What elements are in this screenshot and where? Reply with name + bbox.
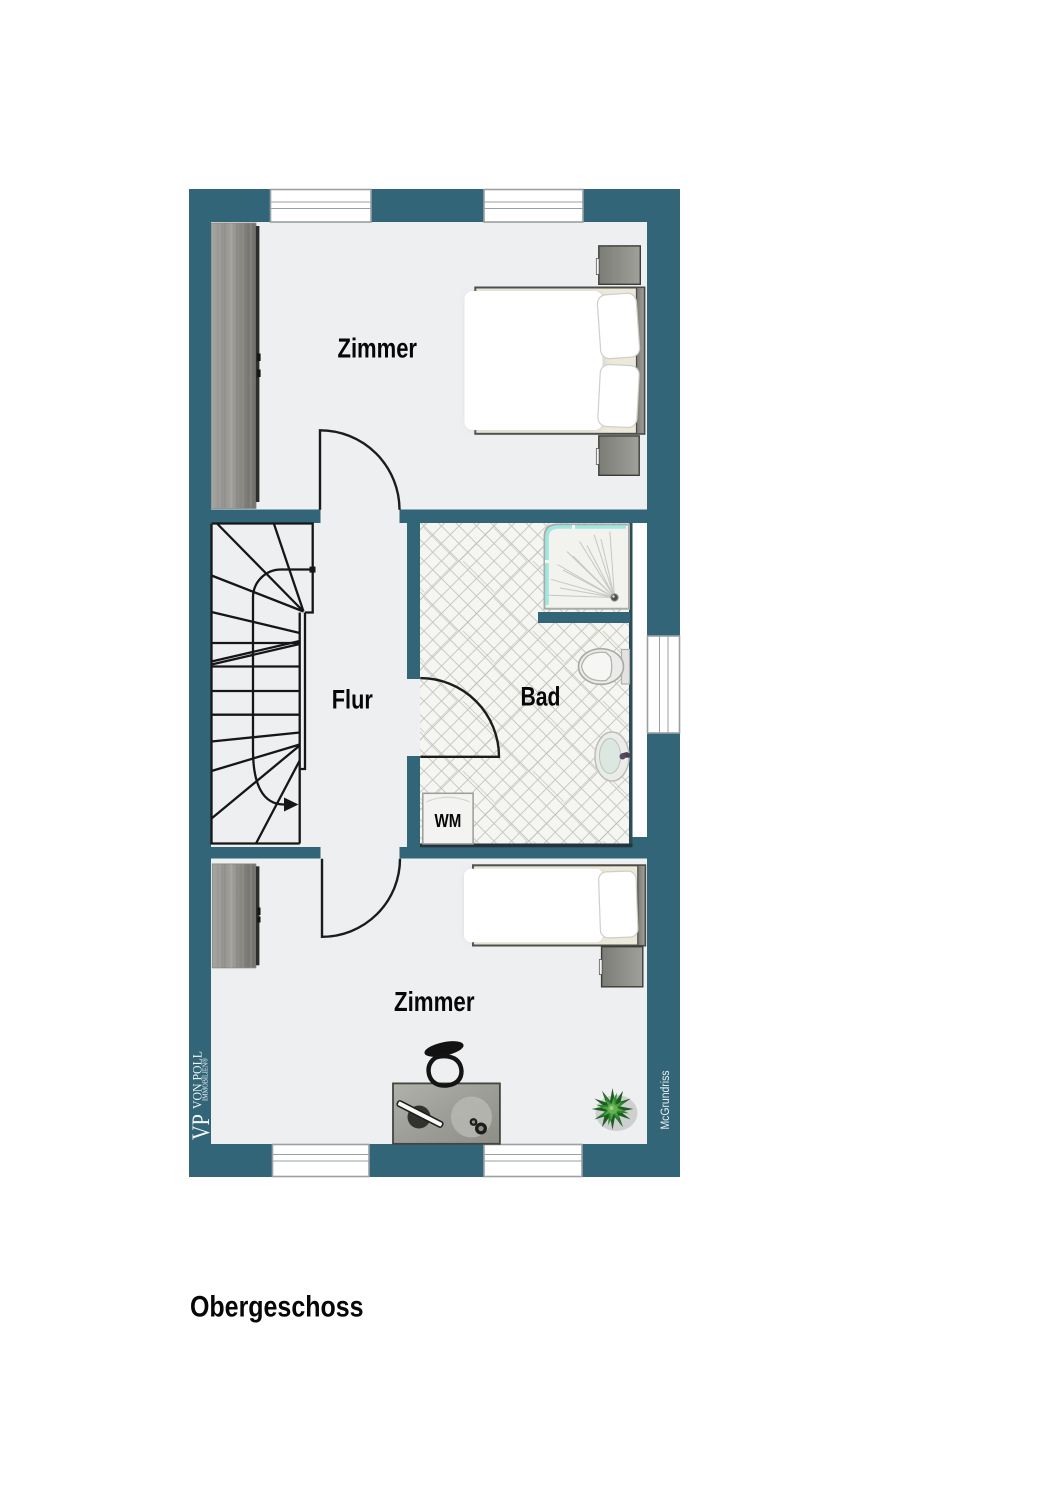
svg-text:Flur: Flur — [332, 684, 373, 714]
svg-text:Zimmer: Zimmer — [394, 986, 475, 1017]
svg-text:Zimmer: Zimmer — [338, 333, 418, 364]
svg-text:VP: VP — [188, 1114, 215, 1140]
svg-text:WM: WM — [435, 811, 462, 831]
svg-text:IMMOBILIEN®: IMMOBILIEN® — [203, 1058, 210, 1101]
svg-text:Bad: Bad — [521, 682, 561, 712]
svg-text:Obergeschoss: Obergeschoss — [190, 1291, 364, 1324]
svg-text:McGrundriss: McGrundriss — [660, 1070, 672, 1129]
